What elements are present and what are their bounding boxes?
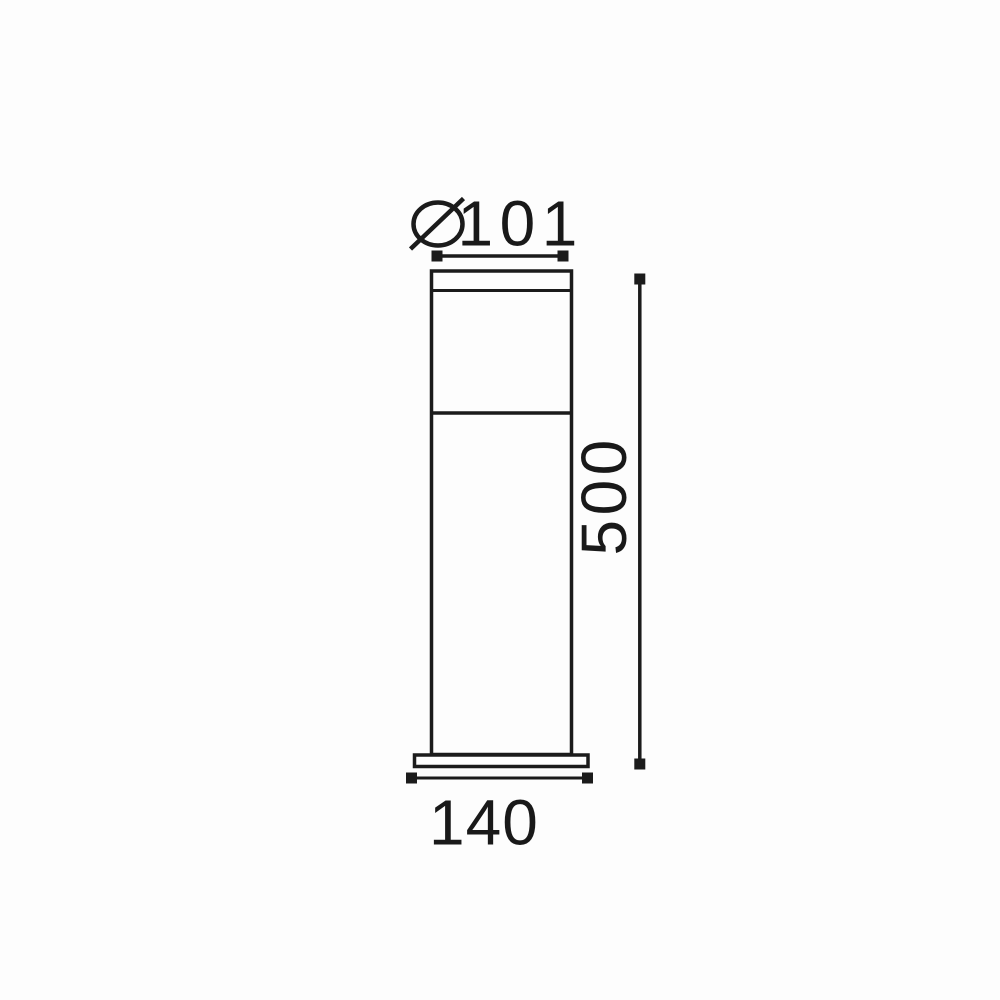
- svg-text:101: 101: [458, 188, 584, 260]
- svg-text:500: 500: [568, 435, 640, 555]
- svg-text:140: 140: [429, 787, 539, 859]
